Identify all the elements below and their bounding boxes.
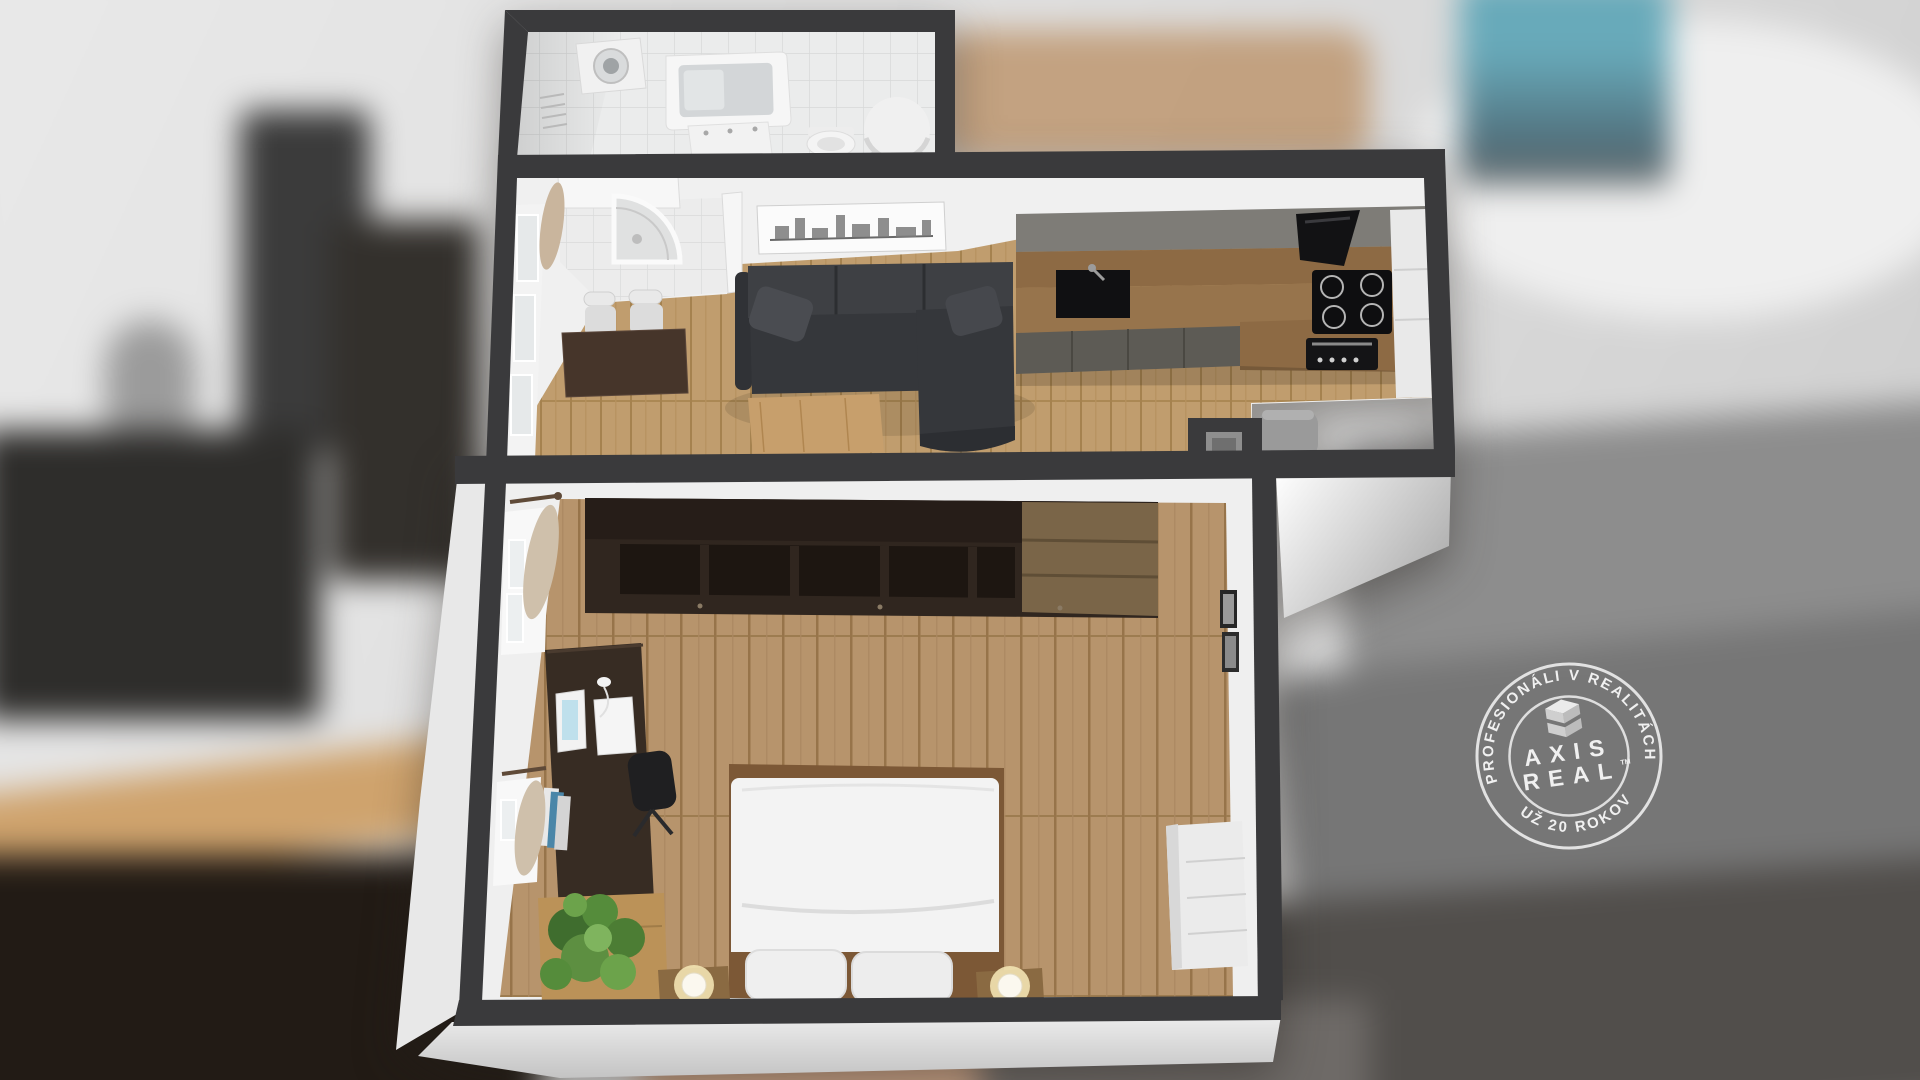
axis-real-building-icon xyxy=(1544,697,1583,739)
watermark-badge: PROFESIONÁLI V REALITÁCH UŽ 20 ROKOV AXI… xyxy=(0,0,1920,1080)
screenshot-root: PROFESIONÁLI V REALITÁCH UŽ 20 ROKOV AXI… xyxy=(0,0,1920,1080)
badge-trademark: TM xyxy=(1620,759,1631,767)
